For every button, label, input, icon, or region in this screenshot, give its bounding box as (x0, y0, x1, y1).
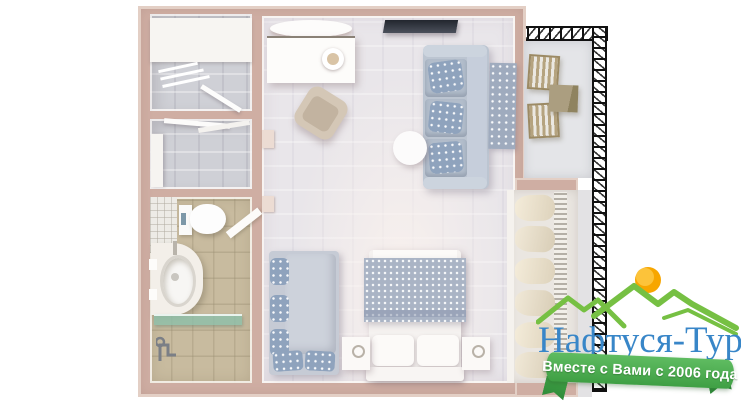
plate (322, 48, 344, 70)
daybed-pillow (270, 295, 289, 322)
wall-lamp (149, 289, 157, 300)
coffee-table (393, 131, 427, 165)
wall-lamp (149, 259, 157, 270)
bed-blanket (364, 258, 466, 322)
hanging-clothes (515, 225, 556, 252)
daybed-cushion (285, 254, 336, 354)
storage-room-middle-floor (150, 119, 252, 189)
lamp-icon (472, 345, 485, 358)
hanging-clothes (515, 194, 556, 221)
range-hood-oval (270, 20, 352, 37)
nightstand-left (342, 337, 370, 370)
sofa-pillow (427, 100, 464, 134)
sofa-backrest (467, 48, 487, 186)
sun-highlight (636, 268, 654, 286)
storage-cabinet-top (150, 18, 252, 62)
sink-drain (171, 273, 179, 281)
leaning-plank (200, 84, 242, 113)
wardrobe-side-panel (507, 190, 514, 383)
door-panel (151, 134, 163, 187)
sofa (423, 45, 489, 189)
toilet-flush-button (181, 213, 186, 225)
floorplan-render: Нафтуся-Тур Вместе с Вами с 2006 года (0, 0, 741, 410)
armchair-seat (300, 94, 340, 134)
logo-tagline: Вместе с Вами с 2006 года (542, 358, 738, 383)
logo: Нафтуся-Тур Вместе с Вами с 2006 года (536, 260, 741, 400)
sink-basin (160, 255, 196, 307)
plate-food (327, 53, 339, 65)
bathroom-floor (150, 197, 252, 383)
daybed (269, 251, 339, 375)
kitchen-counter (267, 36, 355, 83)
bed-pillow (372, 335, 414, 366)
sink-faucet (173, 241, 177, 255)
doorway-jamb (262, 130, 274, 148)
doorway-jamb (262, 196, 274, 212)
daybed-pillow (270, 258, 289, 285)
bed-pillow (417, 335, 459, 366)
sofa-armrest (423, 45, 487, 57)
toilet-bowl (190, 204, 226, 234)
sink-counter (151, 243, 203, 315)
sofa-pillow (428, 141, 465, 175)
storage-room-top-floor (150, 14, 252, 111)
throw-blanket (488, 63, 516, 149)
sofa-armrest (423, 177, 487, 189)
balcony-table (549, 85, 579, 113)
glass-shelf (154, 314, 242, 325)
tv-screen (383, 20, 458, 33)
shower-fixture-icon (156, 335, 182, 365)
nightstand-right (462, 337, 490, 370)
sofa-pillow (427, 59, 465, 94)
daybed-pillow (304, 350, 335, 372)
lamp-icon (352, 345, 365, 358)
blanket-fold-line (364, 310, 466, 317)
daybed-pillow (272, 350, 303, 372)
bed-headboard (366, 367, 464, 381)
